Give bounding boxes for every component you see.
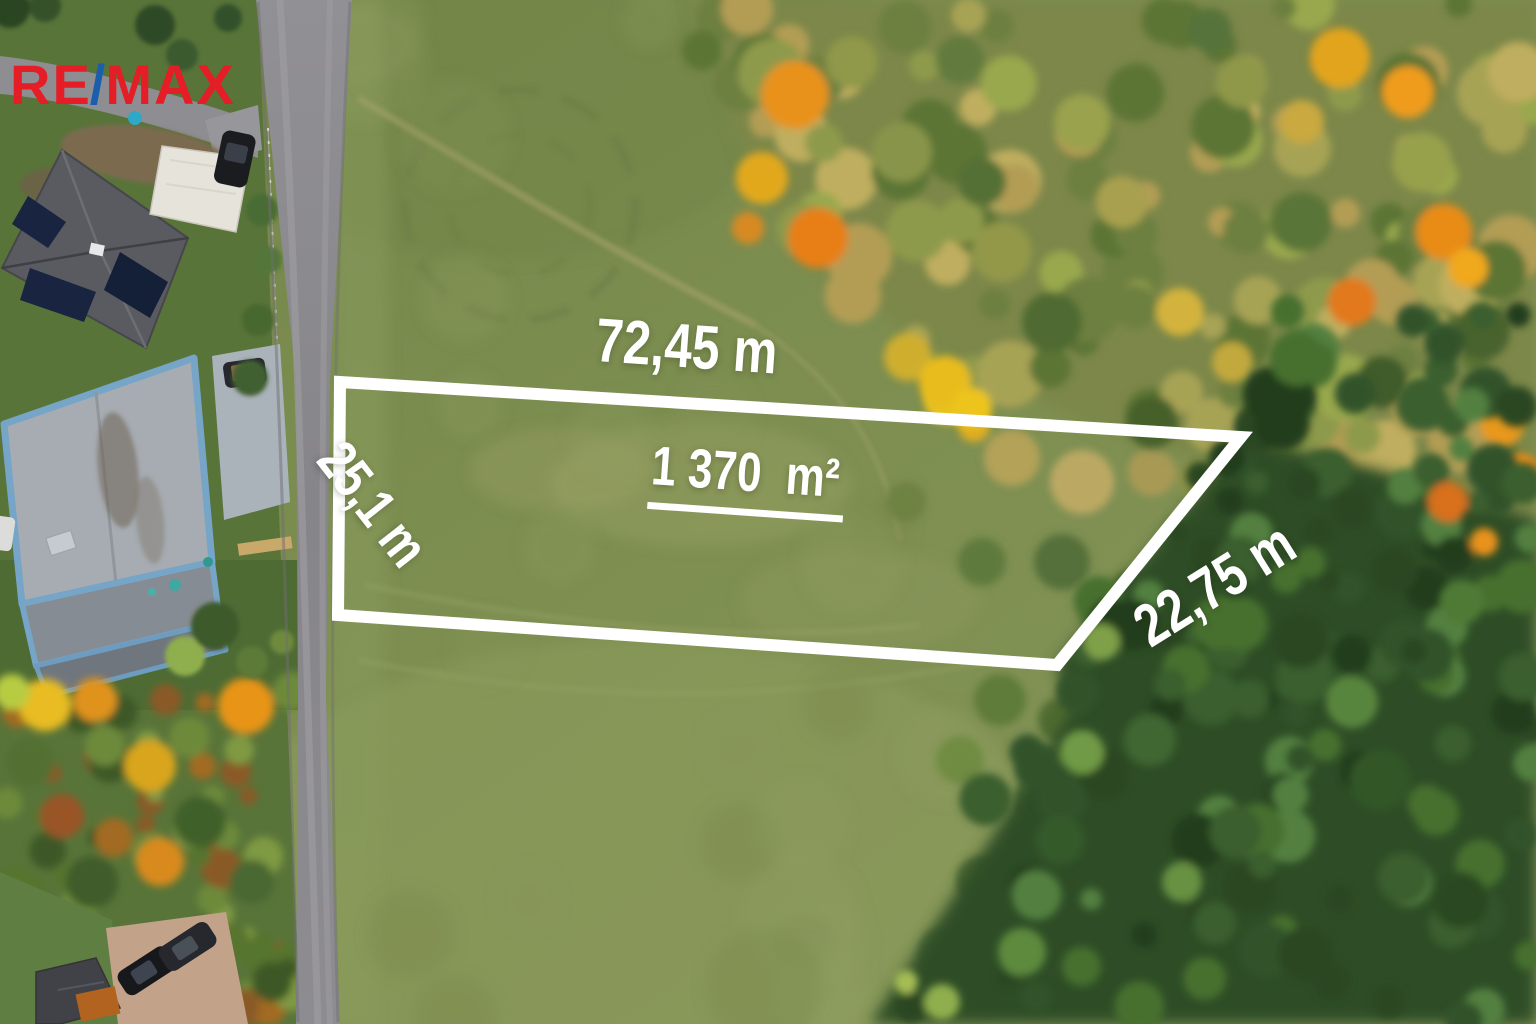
plot-top-length-label: 72,45 m bbox=[594, 310, 780, 385]
aerial-photo: 72,45 m 1 370 m² 25,1 m 22,75 m RE/MAX bbox=[0, 0, 1536, 1024]
plot-area-label: 1 370 m² bbox=[647, 438, 848, 523]
remax-logo-re: RE bbox=[10, 53, 92, 116]
remax-logo-max: MAX bbox=[105, 53, 235, 116]
remax-logo: RE/MAX bbox=[10, 57, 236, 113]
